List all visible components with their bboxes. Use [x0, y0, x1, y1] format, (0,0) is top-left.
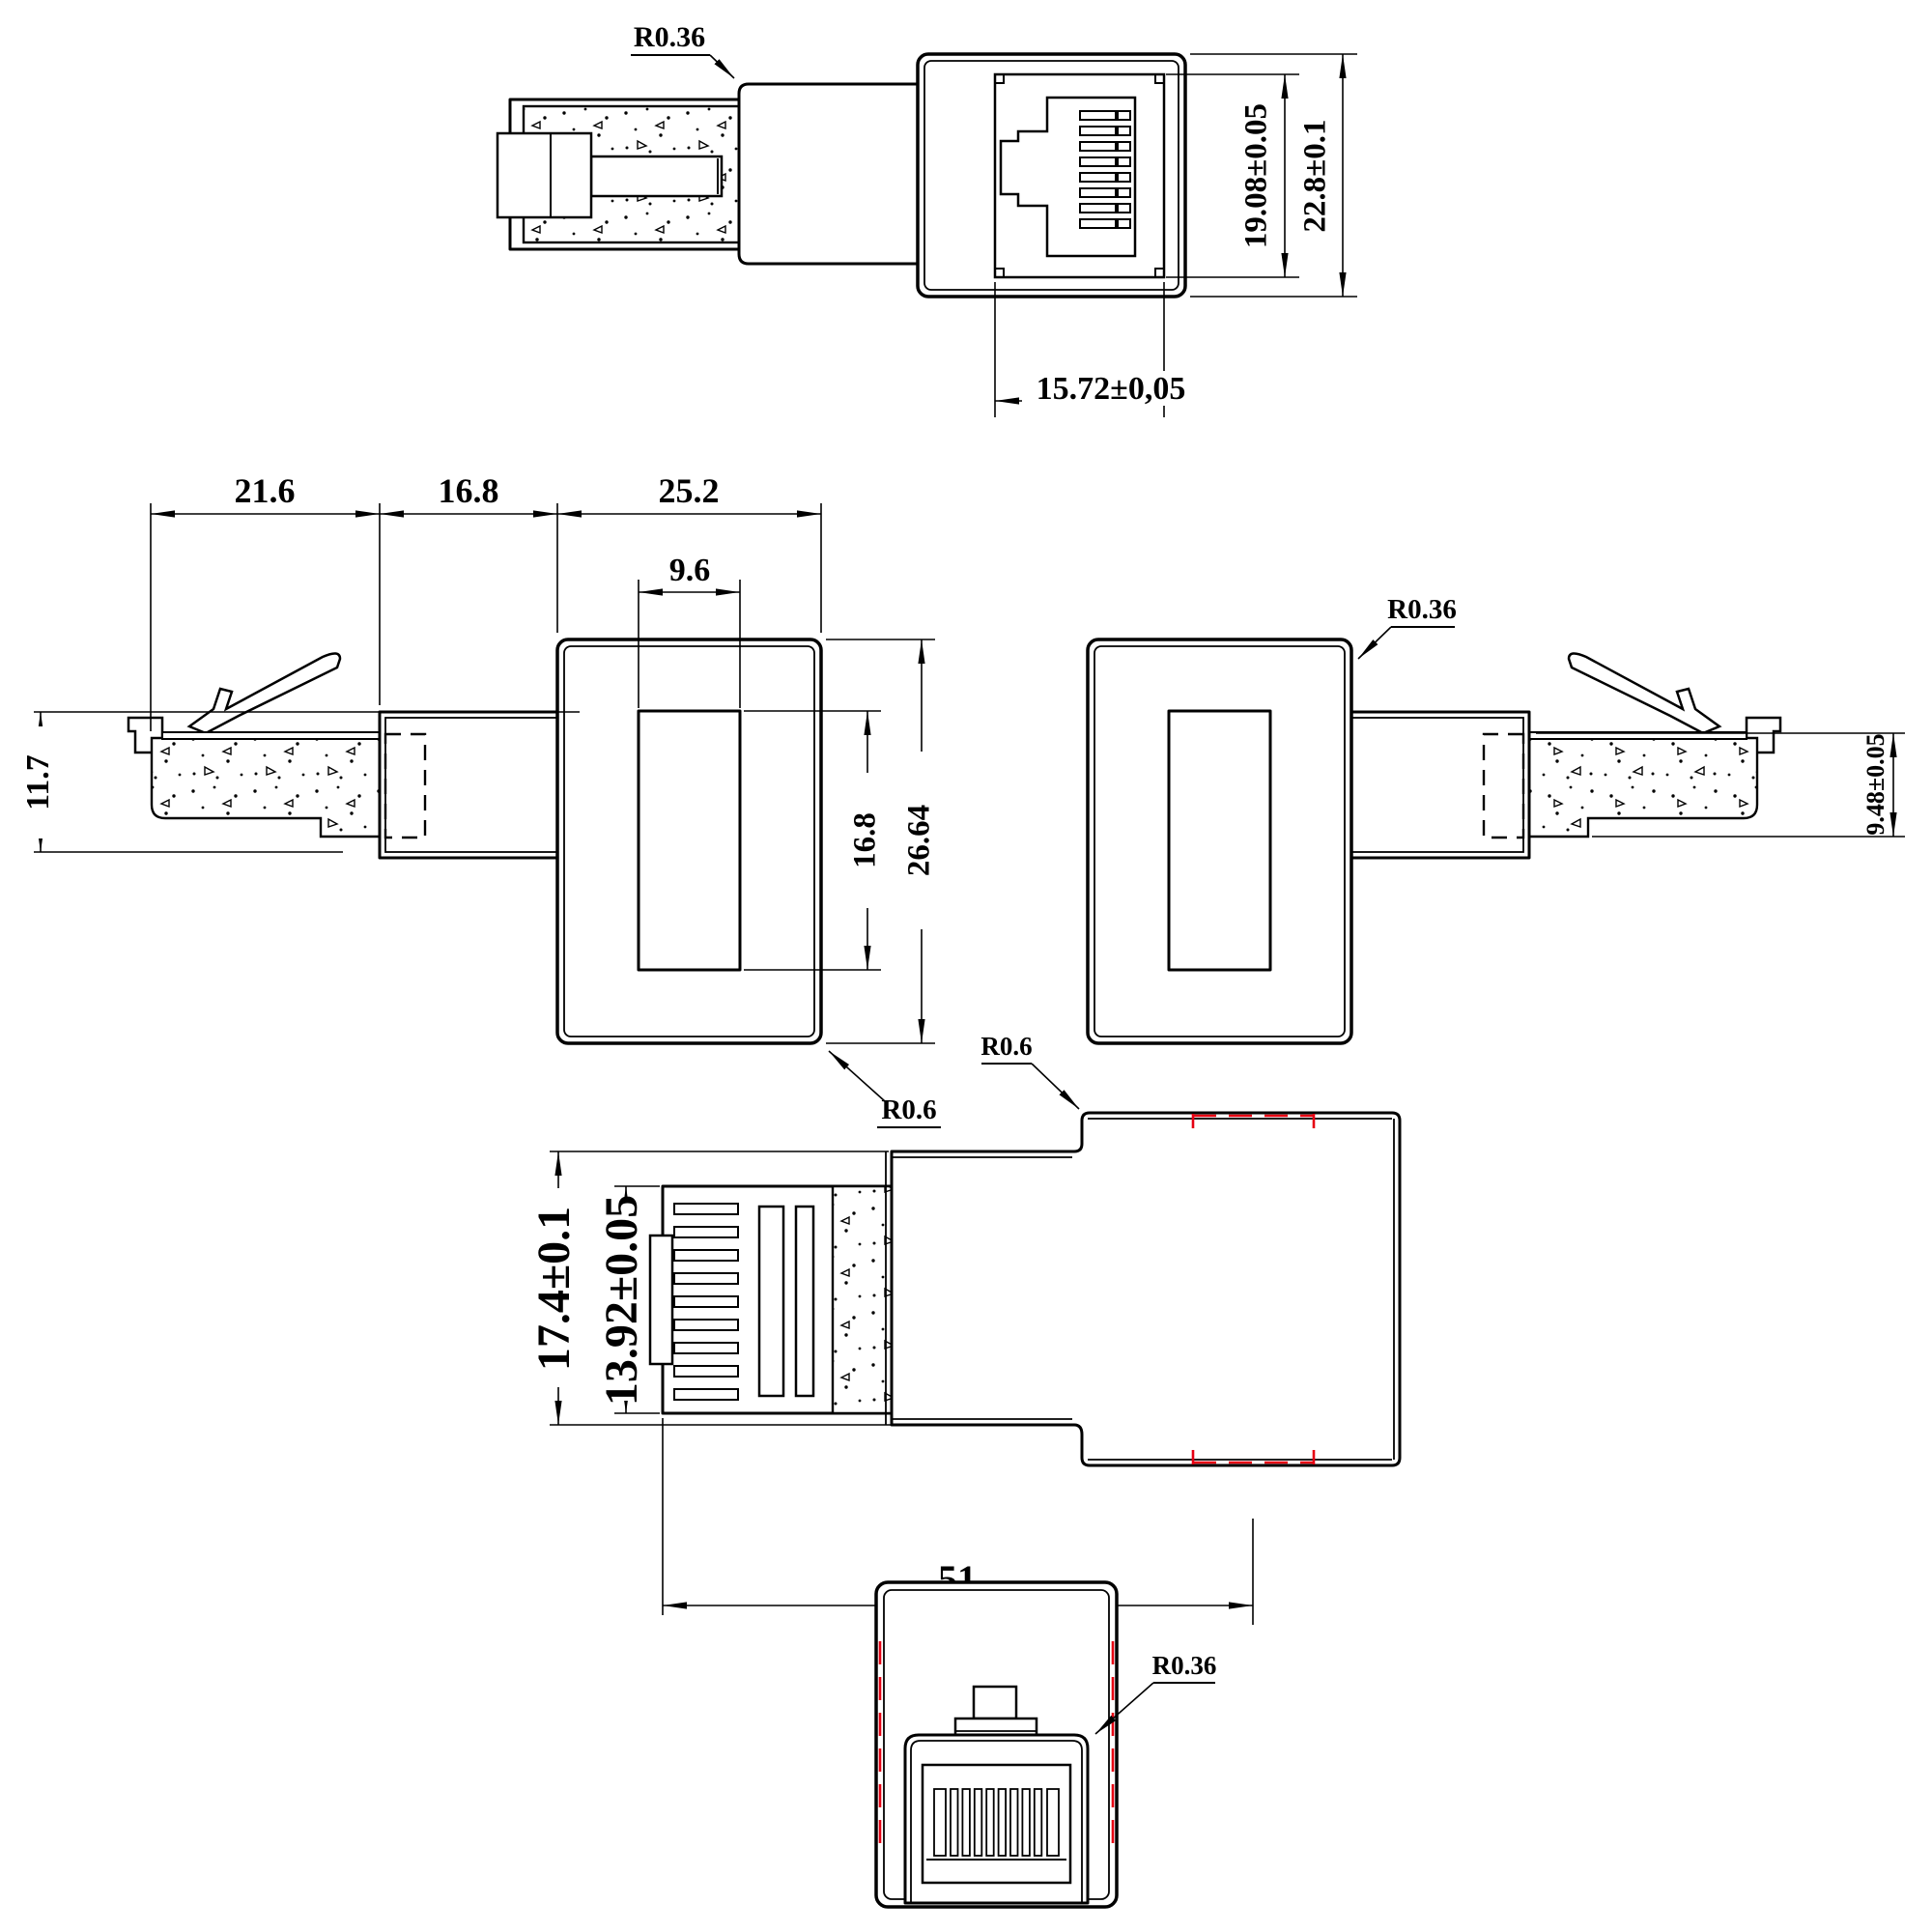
top-fillet-leader: [710, 55, 734, 78]
plug-slot-1: [759, 1207, 783, 1396]
plug-contact-comb: [674, 1204, 738, 1400]
top-view: R0.36 19.08±0.05 22.8±0.1 15.72±0,05: [497, 21, 1357, 417]
technical-drawing-svg: R0.36 19.08±0.05 22.8±0.1 15.72±0,05 21.…: [0, 0, 1932, 1932]
rotated-fillet-label: R0.6: [980, 1032, 1032, 1061]
rotated-view: R0.6 17.4±0.1 13.92±0.05 51: [528, 1032, 1400, 1625]
plug-front-window: [923, 1765, 1070, 1883]
top-fillet-label: R0.36: [634, 21, 705, 53]
dim-mirrored-plug-height: 9.48±0.05: [1861, 733, 1889, 835]
plug-slot-2: [796, 1207, 813, 1396]
front-fillet-label: R0.36: [1152, 1651, 1217, 1680]
side-view-geometry: [128, 639, 821, 1043]
side-view-mirrored: R0.36 9.48±0.05: [1088, 594, 1905, 1043]
side-fillet-label: R0.6: [881, 1094, 936, 1125]
rotated-fillet-leader: [1032, 1064, 1079, 1109]
dim-window-width: 9.6: [669, 553, 711, 588]
cable-flat-top: [591, 156, 722, 196]
dim-window-height: 16.8: [848, 812, 883, 868]
dim-plug-height: 11.7: [20, 754, 56, 810]
mirrored-fillet-leader: [1358, 627, 1391, 659]
dim-neck-length: 16.8: [439, 471, 499, 510]
dim-rotated-plug-width: 13.92±0.05: [596, 1195, 647, 1406]
adapter-neck-top: [739, 84, 918, 264]
dim-overall-height: 22.8±0.1: [1298, 119, 1333, 232]
dim-head-height: 26.64: [902, 805, 937, 876]
latch-tab: [974, 1687, 1016, 1719]
jack-window: [639, 711, 740, 970]
dim-rotated-overall-height: 17.4±0.1: [528, 1207, 580, 1371]
front-view: R0.36: [876, 1582, 1216, 1907]
latch: [189, 653, 340, 733]
dim-jack-opening-width: 15.72±0,05: [1037, 371, 1186, 407]
plug-body: [152, 738, 380, 837]
cable-boot-top: [497, 133, 591, 217]
jack-body-profile: [892, 1113, 1400, 1465]
dim-jack-opening-height: 19.08±0.05: [1239, 103, 1274, 248]
adapter-neck: [380, 712, 563, 858]
dim-plug-length: 21.6: [235, 471, 296, 510]
plug-rear-hatch: [833, 1186, 892, 1413]
plug-rear-tab: [650, 1236, 672, 1364]
dim-head-length: 25.2: [659, 471, 720, 510]
mirrored-fillet-label: R0.36: [1387, 594, 1457, 625]
contact-plate: [162, 732, 380, 739]
side-fillet-leader: [829, 1051, 885, 1101]
drawing-sheet: R0.36 19.08±0.05 22.8±0.1 15.72±0,05 21.…: [0, 0, 1932, 1932]
